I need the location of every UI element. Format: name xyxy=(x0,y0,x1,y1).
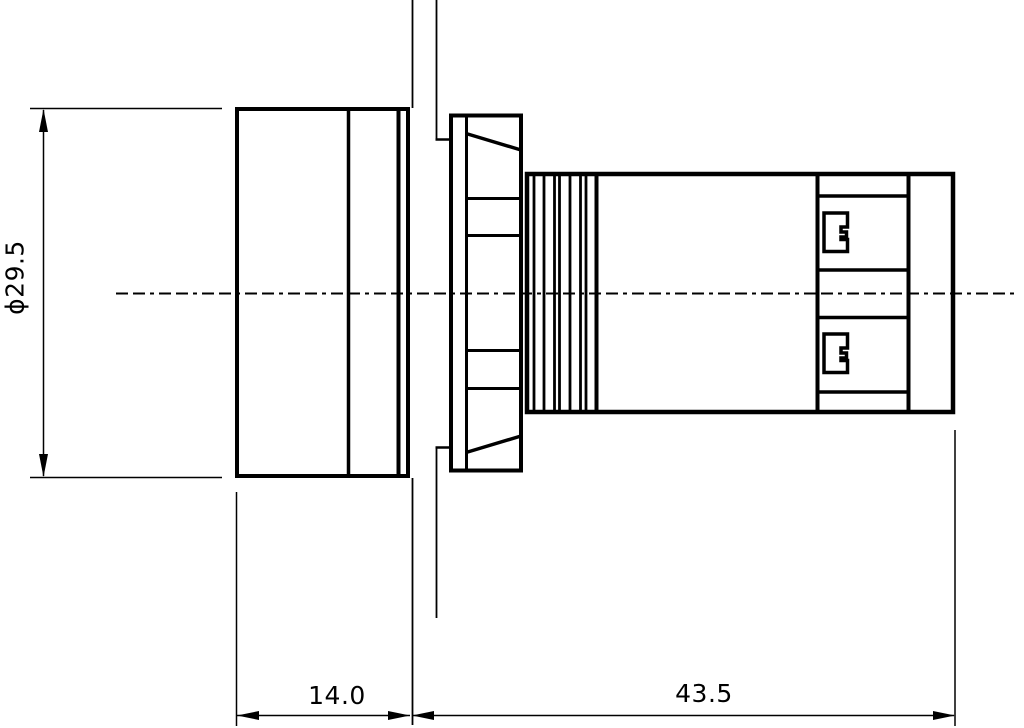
dimension-label-body-length: 43.5 xyxy=(654,680,754,707)
dimension-label-head-width: 14.0 xyxy=(287,682,387,709)
terminal-screw-lower xyxy=(824,334,848,373)
technical-drawing-canvas: ϕ29.5 14.0 43.5 xyxy=(0,0,1024,728)
indicator-light-side-view-drawing xyxy=(0,0,1024,728)
terminal-screw-upper xyxy=(824,213,848,252)
dimension-label-diameter: ϕ29.5 xyxy=(2,218,29,338)
mounting-panel-lines xyxy=(413,0,437,725)
